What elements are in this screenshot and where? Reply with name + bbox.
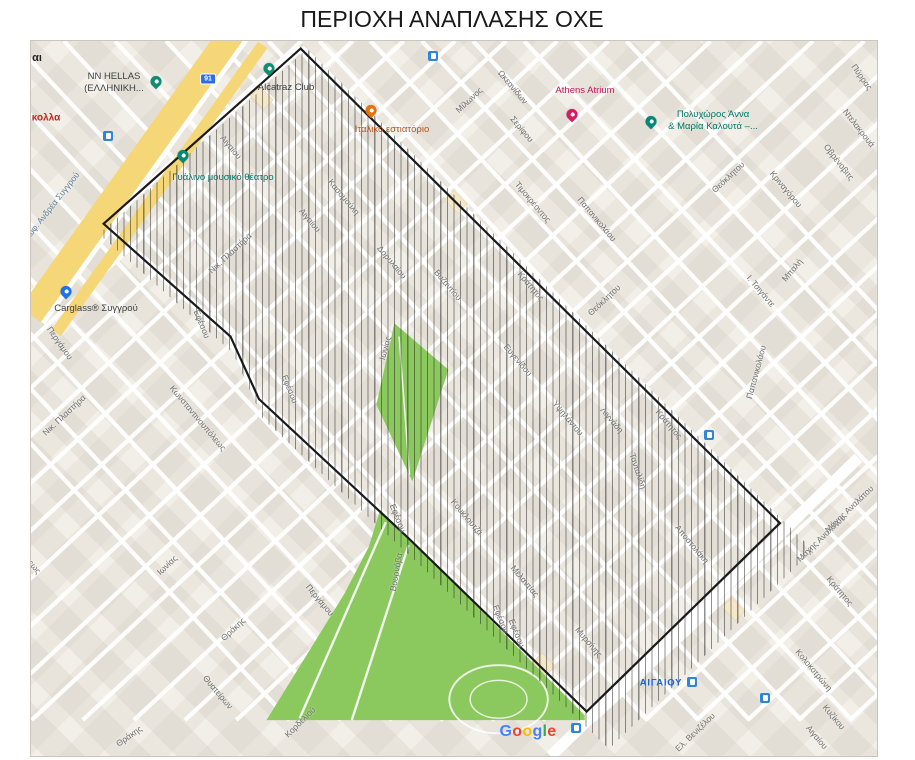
street-label: Νικ. Πλαστήρα	[40, 392, 87, 437]
street-label: Κωνσταντινουπόλεως	[168, 383, 228, 452]
street-label: Περγάμου	[45, 324, 75, 361]
transit-stop-icon	[760, 693, 770, 703]
google-logo-letter: e	[547, 723, 556, 740]
street-label: Μίλωνος	[454, 85, 485, 115]
poi-label-line: Γυάλινο μουσικό θέατρο	[172, 172, 273, 184]
google-logo: Google	[499, 723, 556, 741]
street-label: Ωκεανίδων	[496, 68, 530, 106]
poi-label-line: Carglass® Συγγρού	[54, 303, 138, 315]
street-label: Ντελακρουά	[841, 107, 877, 149]
transit-stop-icon	[704, 430, 714, 440]
street-label: Θράκης	[114, 723, 144, 748]
street-label: Μπαλή	[780, 257, 805, 284]
google-logo-letter: G	[499, 723, 512, 740]
poi-label: Carglass® Συγγρού	[54, 303, 138, 315]
street-label: Σερίφου	[508, 114, 535, 144]
street-label: Λεωφ. Ανδρέα Συγγρού	[30, 170, 81, 246]
street-label: Θεόκλητου	[586, 282, 623, 317]
street-label: Μάχης Αναλάτου	[823, 483, 876, 534]
map-canvas: Λεωφ. Ανδρέα ΣυγγρούΑιγαίουΑιγαίουΝικ. Π…	[30, 40, 878, 757]
page-title: ΠΕΡΙΟΧΗ ΑΝΑΠΛΑΣΗΣ ΟΧΕ	[300, 6, 603, 33]
scanned-map-page: ΠΕΡΙΟΧΗ ΑΝΑΠΛΑΣΗΣ ΟΧΕ Λεωφ. Ανδρέα Συγγρ…	[0, 0, 915, 760]
transit-stop-icon	[428, 51, 438, 61]
transit-stop-icon	[571, 723, 581, 733]
street-label: Κράτητος	[825, 574, 856, 608]
poi-label-line: Alcatraz Club	[258, 82, 315, 94]
street-label: Βουρνόβα	[388, 552, 405, 592]
poi-label: Γυάλινο μουσικό θέατρο	[172, 172, 273, 184]
poi-label-line: NN HELLAS	[84, 71, 144, 83]
edge-text-fragment: αι	[32, 52, 42, 64]
poi-label-line: & Μαρία Καλουτά –...	[668, 121, 758, 133]
street-label: Θυατείρων	[201, 673, 235, 711]
route-badge: 91	[200, 74, 216, 85]
street-label: Παπανικολάου	[744, 344, 768, 400]
street-label: Ελ. Βενιζέλου	[673, 711, 717, 754]
street-label: Ι. Τσιγάντε	[745, 273, 778, 309]
google-logo-letter: o	[522, 723, 532, 740]
poi-pin	[643, 114, 659, 130]
poi-label-line: Athens Atrium	[555, 85, 614, 97]
area-label-aigaiou: ΑΙΓΑΙΟΥ	[640, 678, 682, 689]
poi-label: NN HELLAS(ΕΛΛΗΝΙΚΗ...	[84, 71, 144, 95]
poi-label-line: Ιταλικό εστιατόριο	[355, 124, 429, 136]
street-label: Παπανικολάου	[575, 195, 618, 244]
street-label: Αιγαίου	[804, 723, 830, 751]
poi-pin	[58, 284, 74, 300]
street-label: Πύρρας	[849, 62, 874, 92]
street-label: Κορδελιού	[283, 705, 318, 740]
street-label: Κολοκοτρώνη	[794, 647, 835, 693]
transit-stop-icon	[103, 131, 113, 141]
poi-label: Πολυχώρος Άννα& Μαρία Καλουτά –...	[668, 109, 758, 133]
street-label: Κυζίκου	[821, 702, 848, 731]
street-label: Οβρένοβιτς	[822, 142, 856, 182]
street-label: Κριναγόρου	[768, 169, 804, 210]
poi-pin	[148, 74, 164, 90]
transit-stop-icon	[687, 677, 697, 687]
poi-pin	[261, 61, 277, 77]
google-logo-letter: o	[512, 723, 522, 740]
street-label: Ιωνίας	[155, 553, 179, 577]
edge-text-fragment: κολλα	[32, 113, 61, 124]
street-label: Περγάμου	[304, 582, 336, 618]
street-label: Θράκης	[219, 615, 247, 642]
google-logo-letter: g	[532, 723, 542, 740]
poi-label: Athens Atrium	[555, 85, 614, 97]
street-label: Κωνσταντινουπόλεως	[30, 506, 43, 575]
poi-label-line: Πολυχώρος Άννα	[668, 109, 758, 121]
poi-label-line: (ΕΛΛΗΝΙΚΗ...	[84, 83, 144, 95]
poi-pin	[564, 107, 580, 123]
poi-label: Ιταλικό εστιατόριο	[355, 124, 429, 136]
street-label: Θεόκλητου	[710, 159, 747, 194]
street-label: Τιμοκρέοντος	[513, 180, 553, 225]
poi-label: Alcatraz Club	[258, 82, 315, 94]
